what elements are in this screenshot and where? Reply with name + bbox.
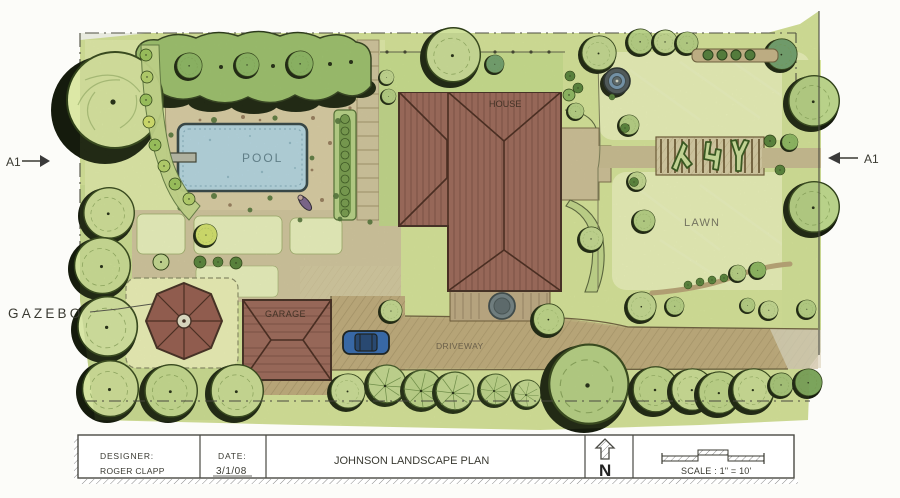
svg-text:LAWN: LAWN [684, 217, 720, 229]
svg-text:GAZEBO: GAZEBO [8, 306, 83, 321]
svg-text:JOHNSON LANDSCAPE PLAN: JOHNSON LANDSCAPE PLAN [334, 455, 489, 467]
svg-text:3/1/08: 3/1/08 [216, 466, 247, 477]
svg-text:DESIGNER:: DESIGNER: [100, 451, 154, 461]
svg-text:SCALE : 1" = 10': SCALE : 1" = 10' [681, 466, 751, 476]
svg-text:A1: A1 [6, 155, 21, 169]
svg-text:N: N [599, 461, 611, 480]
svg-text:DATE:: DATE: [218, 451, 246, 461]
svg-text:ROGER CLAPP: ROGER CLAPP [100, 466, 165, 476]
svg-text:A1: A1 [864, 152, 879, 166]
svg-text:DRIVEWAY: DRIVEWAY [436, 341, 484, 351]
